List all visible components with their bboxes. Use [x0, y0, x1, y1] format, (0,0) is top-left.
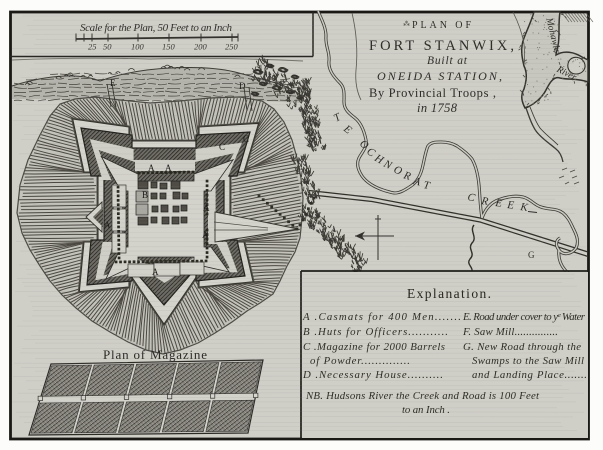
- svg-text:G: G: [528, 250, 535, 260]
- svg-text:of Powder..............: of Powder..............: [310, 355, 410, 367]
- svg-text:Swamps to the Saw Mill: Swamps to the Saw Mill: [472, 355, 584, 367]
- svg-text:Scale for the Plan, 50 Feet to: Scale for the Plan, 50 Feet to an Inch: [80, 22, 233, 34]
- svg-text:Built at: Built at: [427, 55, 468, 67]
- svg-text:and Landing Place.......: and Landing Place.......: [472, 369, 587, 381]
- svg-text:B .Huts for Officers..........: B .Huts for Officers...........: [303, 326, 448, 338]
- svg-text:NB. Hudsons River the Creek a: NB. Hudsons River the Creek and Road is …: [305, 390, 540, 402]
- svg-text:25: 25: [88, 42, 97, 52]
- svg-text:to an Inch .: to an Inch .: [402, 404, 450, 416]
- svg-text:150: 150: [162, 42, 176, 52]
- svg-text:Plan of Magazine: Plan of Magazine: [103, 347, 207, 362]
- svg-text:A: A: [152, 267, 159, 277]
- svg-text:250: 250: [225, 42, 239, 52]
- svg-text:⁂: ⁂: [403, 20, 410, 28]
- svg-text:A: A: [104, 220, 111, 230]
- svg-text:C: C: [243, 134, 249, 144]
- svg-text:ONEIDA STATION,: ONEIDA STATION,: [377, 69, 503, 83]
- svg-text:FORT STANWIX,: FORT STANWIX,: [369, 38, 516, 54]
- svg-text:A: A: [148, 163, 155, 173]
- svg-text:C .Magazine for 2000 Barrels: C .Magazine for 2000 Barrels: [303, 341, 445, 353]
- svg-text:A: A: [165, 163, 172, 173]
- svg-text:D .Necessary House..........: D .Necessary House..........: [302, 369, 443, 381]
- svg-text:in 1758: in 1758: [417, 101, 458, 115]
- svg-text:By Provincial Troops ,: By Provincial Troops ,: [369, 86, 496, 100]
- svg-text:A: A: [202, 230, 209, 240]
- svg-text:50: 50: [103, 42, 112, 52]
- svg-text:E: E: [506, 199, 515, 212]
- svg-text:200: 200: [194, 42, 208, 52]
- svg-text:Explanation.: Explanation.: [407, 286, 492, 301]
- svg-text:F. Saw Mill...............: F. Saw Mill...............: [462, 326, 558, 338]
- svg-text:100: 100: [131, 42, 145, 52]
